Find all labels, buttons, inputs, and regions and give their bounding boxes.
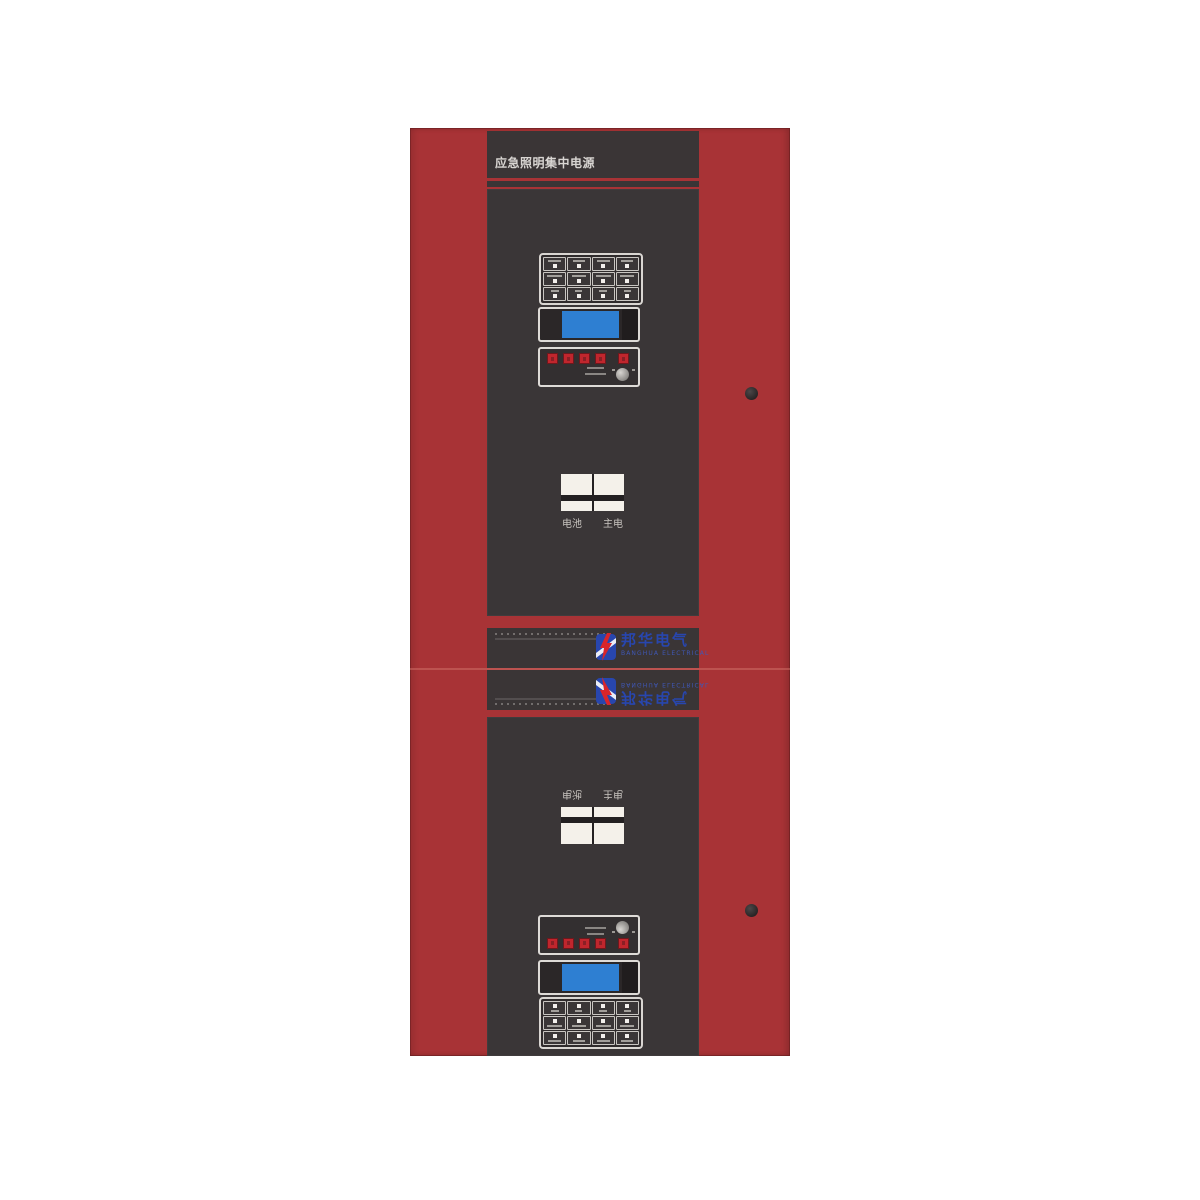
rocker-switch-battery (561, 807, 592, 844)
grid-button (592, 272, 615, 286)
key-switch-knob (616, 921, 629, 934)
lower-breaker-switches-mirrored: 电池 主电 (561, 790, 624, 844)
grid-button (616, 1016, 639, 1030)
button-grid (543, 257, 639, 301)
red-button-group (547, 353, 606, 364)
grid-button (543, 272, 566, 286)
grid-button (616, 1031, 639, 1045)
lock-hole-upper (745, 387, 758, 400)
power-cabinet: 应急照明集中电源 电池 主电 (410, 128, 790, 1056)
red-button (547, 353, 558, 364)
red-button (595, 353, 606, 364)
red-button (563, 353, 574, 364)
operation-panel (538, 915, 640, 955)
grid-button (592, 1031, 615, 1045)
rocker-switch-battery (561, 474, 592, 511)
brand-name-en: BANGHUA ELECTRICAL (621, 650, 709, 657)
battery-label: 电池 (562, 788, 582, 803)
button-grid (543, 1001, 639, 1045)
grid-button (567, 1016, 590, 1030)
upper-breaker-switches: 电池 主电 (561, 474, 624, 528)
lightning-logo-icon (595, 676, 617, 706)
lcd-bezel-shade (622, 962, 638, 993)
grid-button (543, 1016, 566, 1030)
grid-button (616, 287, 639, 301)
red-button-group (547, 938, 606, 949)
rocker-labels: 电池 主电 (561, 515, 624, 530)
red-button (595, 938, 606, 949)
brand-name-en: BANGHUA ELECTRICAL (621, 681, 709, 688)
lcd-panel (538, 307, 640, 342)
grid-button (543, 257, 566, 271)
brand-name-cn: 邦华电气 (621, 632, 709, 649)
red-button (547, 938, 558, 949)
button-grid-panel (539, 997, 643, 1049)
grid-button (592, 1001, 615, 1015)
logo-band-lower-mirrored: 邦华电气 BANGHUA ELECTRICAL (487, 670, 699, 710)
panel-microtext-line1 (587, 367, 604, 369)
panel-microtext-line2 (585, 373, 606, 375)
red-button (579, 353, 590, 364)
panel-microtext-line2 (585, 927, 606, 929)
red-button (618, 938, 629, 949)
red-button (563, 938, 574, 949)
lower-control-cluster-mirrored (538, 915, 642, 1049)
grid-button (543, 287, 566, 301)
knob-tick-left (612, 369, 615, 371)
brand-logo: 邦华电气 BANGHUA ELECTRICAL (595, 676, 709, 706)
rocker-labels: 电池 主电 (561, 788, 624, 803)
lcd-screen (562, 311, 619, 338)
knob-tick-right (632, 931, 635, 933)
rocker-switch-pair (561, 474, 624, 511)
grid-button (616, 272, 639, 286)
lcd-panel (538, 960, 640, 995)
lcd-screen (562, 964, 619, 991)
knob-tick-left (612, 931, 615, 933)
rocker-switch-mains (594, 807, 625, 844)
grid-button (567, 1001, 590, 1015)
grid-button (592, 257, 615, 271)
red-button (618, 353, 629, 364)
knob-tick-right (632, 369, 635, 371)
product-photo-canvas: 应急照明集中电源 电池 主电 (0, 0, 1200, 1200)
rocker-switch-mains (594, 474, 625, 511)
nameplate-band: 应急照明集中电源 (487, 131, 699, 178)
brand-name-cn: 邦华电气 (621, 689, 709, 706)
mains-label: 主电 (603, 788, 623, 803)
grid-button (567, 1031, 590, 1045)
upper-control-cluster (538, 253, 642, 387)
rocker-switch-pair (561, 807, 624, 844)
mains-label: 主电 (603, 515, 623, 530)
button-grid-panel (539, 253, 643, 305)
operation-panel (538, 347, 640, 387)
key-switch-knob (616, 368, 629, 381)
red-button-single (618, 353, 629, 364)
logo-band-upper: 邦华电气 BANGHUA ELECTRICAL (487, 628, 699, 668)
grid-button (616, 1001, 639, 1015)
red-button-single (618, 938, 629, 949)
trim-strip (487, 181, 699, 187)
red-button (579, 938, 590, 949)
panel-microtext-line1 (587, 933, 604, 935)
device-title: 应急照明集中电源 (495, 154, 595, 171)
grid-button (616, 257, 639, 271)
grid-button (567, 257, 590, 271)
lcd-bezel-shade (622, 309, 638, 340)
grid-button (592, 287, 615, 301)
lightning-logo-icon (595, 632, 617, 662)
grid-button (567, 272, 590, 286)
grid-button (567, 287, 590, 301)
battery-label: 电池 (562, 515, 582, 530)
grid-button (543, 1031, 566, 1045)
grid-button (592, 1016, 615, 1030)
brand-logo: 邦华电气 BANGHUA ELECTRICAL (595, 632, 709, 662)
grid-button (543, 1001, 566, 1015)
lock-hole-lower (745, 904, 758, 917)
